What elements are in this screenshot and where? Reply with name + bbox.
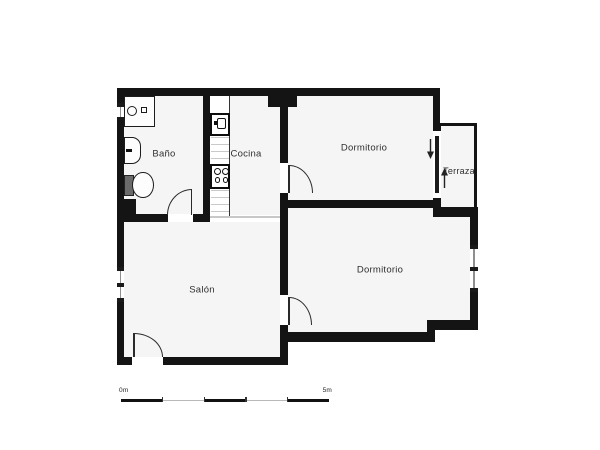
stove-icon	[210, 164, 230, 189]
wall-cocina-left	[203, 96, 210, 222]
wall-mid-divider	[281, 200, 440, 208]
wall-bottom-left	[117, 357, 132, 365]
wall-dormtop-right	[433, 88, 440, 123]
sink-icon	[127, 106, 138, 117]
label-salon: Salón	[189, 285, 215, 296]
passage-line	[210, 216, 280, 218]
wall-terraza-top	[441, 123, 477, 126]
wall-terraza-right	[474, 123, 477, 207]
label-cocina: Cocina	[230, 149, 261, 160]
label-dormitorio-bottom: Dormitorio	[357, 265, 403, 276]
salon-entry-door-leaf	[133, 333, 135, 357]
wall-left-c	[117, 302, 124, 357]
label-dormitorio-top: Dormitorio	[341, 143, 387, 154]
basin-tap-icon	[126, 149, 132, 153]
soap-dish-icon	[141, 107, 147, 113]
label-terraza: Terraza	[443, 166, 475, 176]
dormitorio-bottom-door-leaf	[288, 297, 290, 325]
floor-plan: Baño Cocina Dormitorio Terraza Salón Dor…	[0, 0, 600, 450]
wall-bottom-salon	[163, 357, 288, 365]
wall-center-c	[280, 325, 288, 365]
wall-center-b	[280, 193, 288, 295]
wall-dormbot-bottom-right	[433, 320, 478, 330]
wall-dormbot-right-a	[470, 217, 478, 245]
kitchen-counter-hatch-top	[211, 137, 229, 164]
kitchen-counter-hatch-bottom	[211, 190, 229, 217]
wall-left-b	[117, 120, 124, 267]
dormitorio-bottom-window	[470, 245, 478, 292]
salon-window	[117, 267, 124, 302]
scale-start-label: 0m	[119, 387, 128, 394]
scale-end-label: 5m	[323, 387, 332, 394]
oven-icon	[210, 113, 230, 136]
wall-terraza-bottom	[433, 207, 478, 217]
wall-terraza-shared-a	[433, 123, 441, 131]
toilet-bowl-icon	[132, 172, 154, 199]
label-bano: Baño	[152, 149, 175, 160]
bano-window	[117, 103, 124, 120]
wall-left-a	[117, 96, 124, 103]
wall-dormbot-bottom	[281, 332, 435, 342]
wall-bano-pillar	[123, 199, 136, 222]
wall-dormbot-right-b	[470, 292, 478, 320]
arrow-down-icon	[424, 138, 437, 160]
scale-bar: 0m 5m	[120, 386, 332, 404]
wall-terraza-shared-b	[433, 198, 441, 207]
dormitorio-top-door-leaf	[288, 165, 290, 193]
wall-center-a	[280, 96, 288, 163]
bano-door-leaf	[191, 189, 193, 215]
